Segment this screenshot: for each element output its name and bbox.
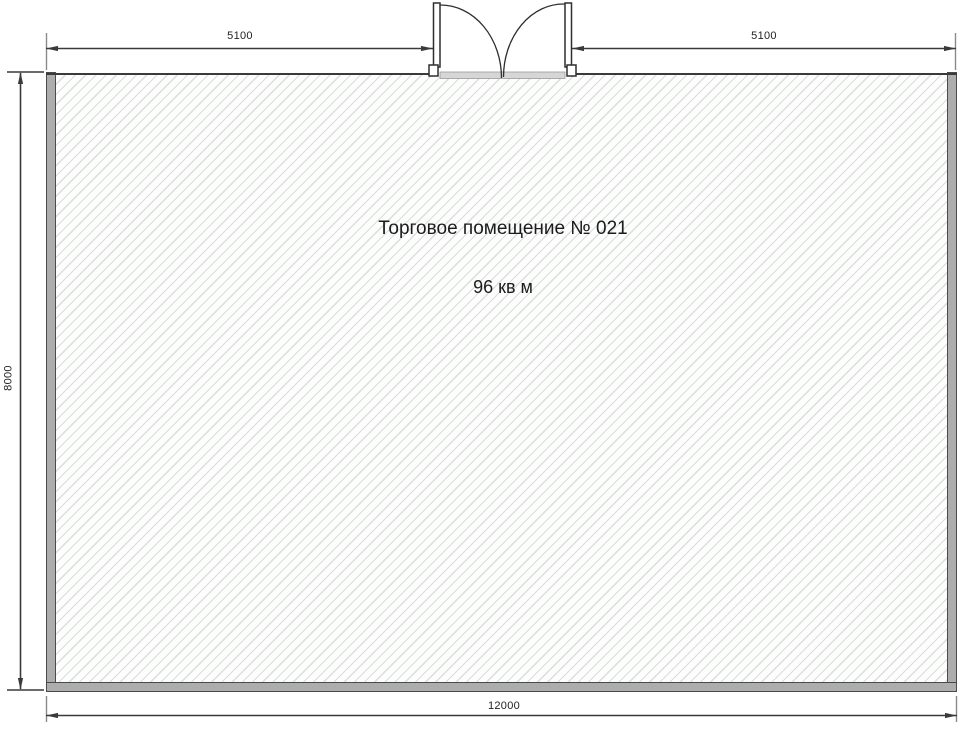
door-leaf-left: [434, 3, 441, 67]
wall-top-line-right: [568, 73, 957, 75]
dimension-top-left: [46, 46, 433, 51]
dimension-left: [18, 72, 23, 690]
wall-right: [947, 72, 957, 692]
dimension-label-top-right: 5100: [751, 31, 777, 42]
room-floor-hatch: [56, 75, 947, 682]
room-area-label: 96 кв м: [473, 277, 533, 298]
wall-left: [46, 72, 56, 692]
door-swing-arc-right: [504, 4, 565, 77]
door-leaf-right: [565, 3, 572, 67]
door-swing-arc-left: [441, 5, 502, 78]
dimension-label-left: 8000: [4, 365, 15, 391]
dimension-top-right: [572, 46, 956, 51]
dimension-label-bottom: 12000: [488, 701, 520, 712]
wall-bottom: [46, 682, 957, 692]
floor-plan-canvas: 5100 5100 8000 12000 Торговое помещение …: [0, 0, 964, 729]
double-door: [429, 3, 576, 78]
wall-top-line-left: [46, 73, 437, 75]
room-title: Торговое помещение № 021: [378, 218, 627, 240]
dimension-bottom: [46, 713, 957, 718]
dimension-label-top-left: 5100: [227, 31, 253, 42]
